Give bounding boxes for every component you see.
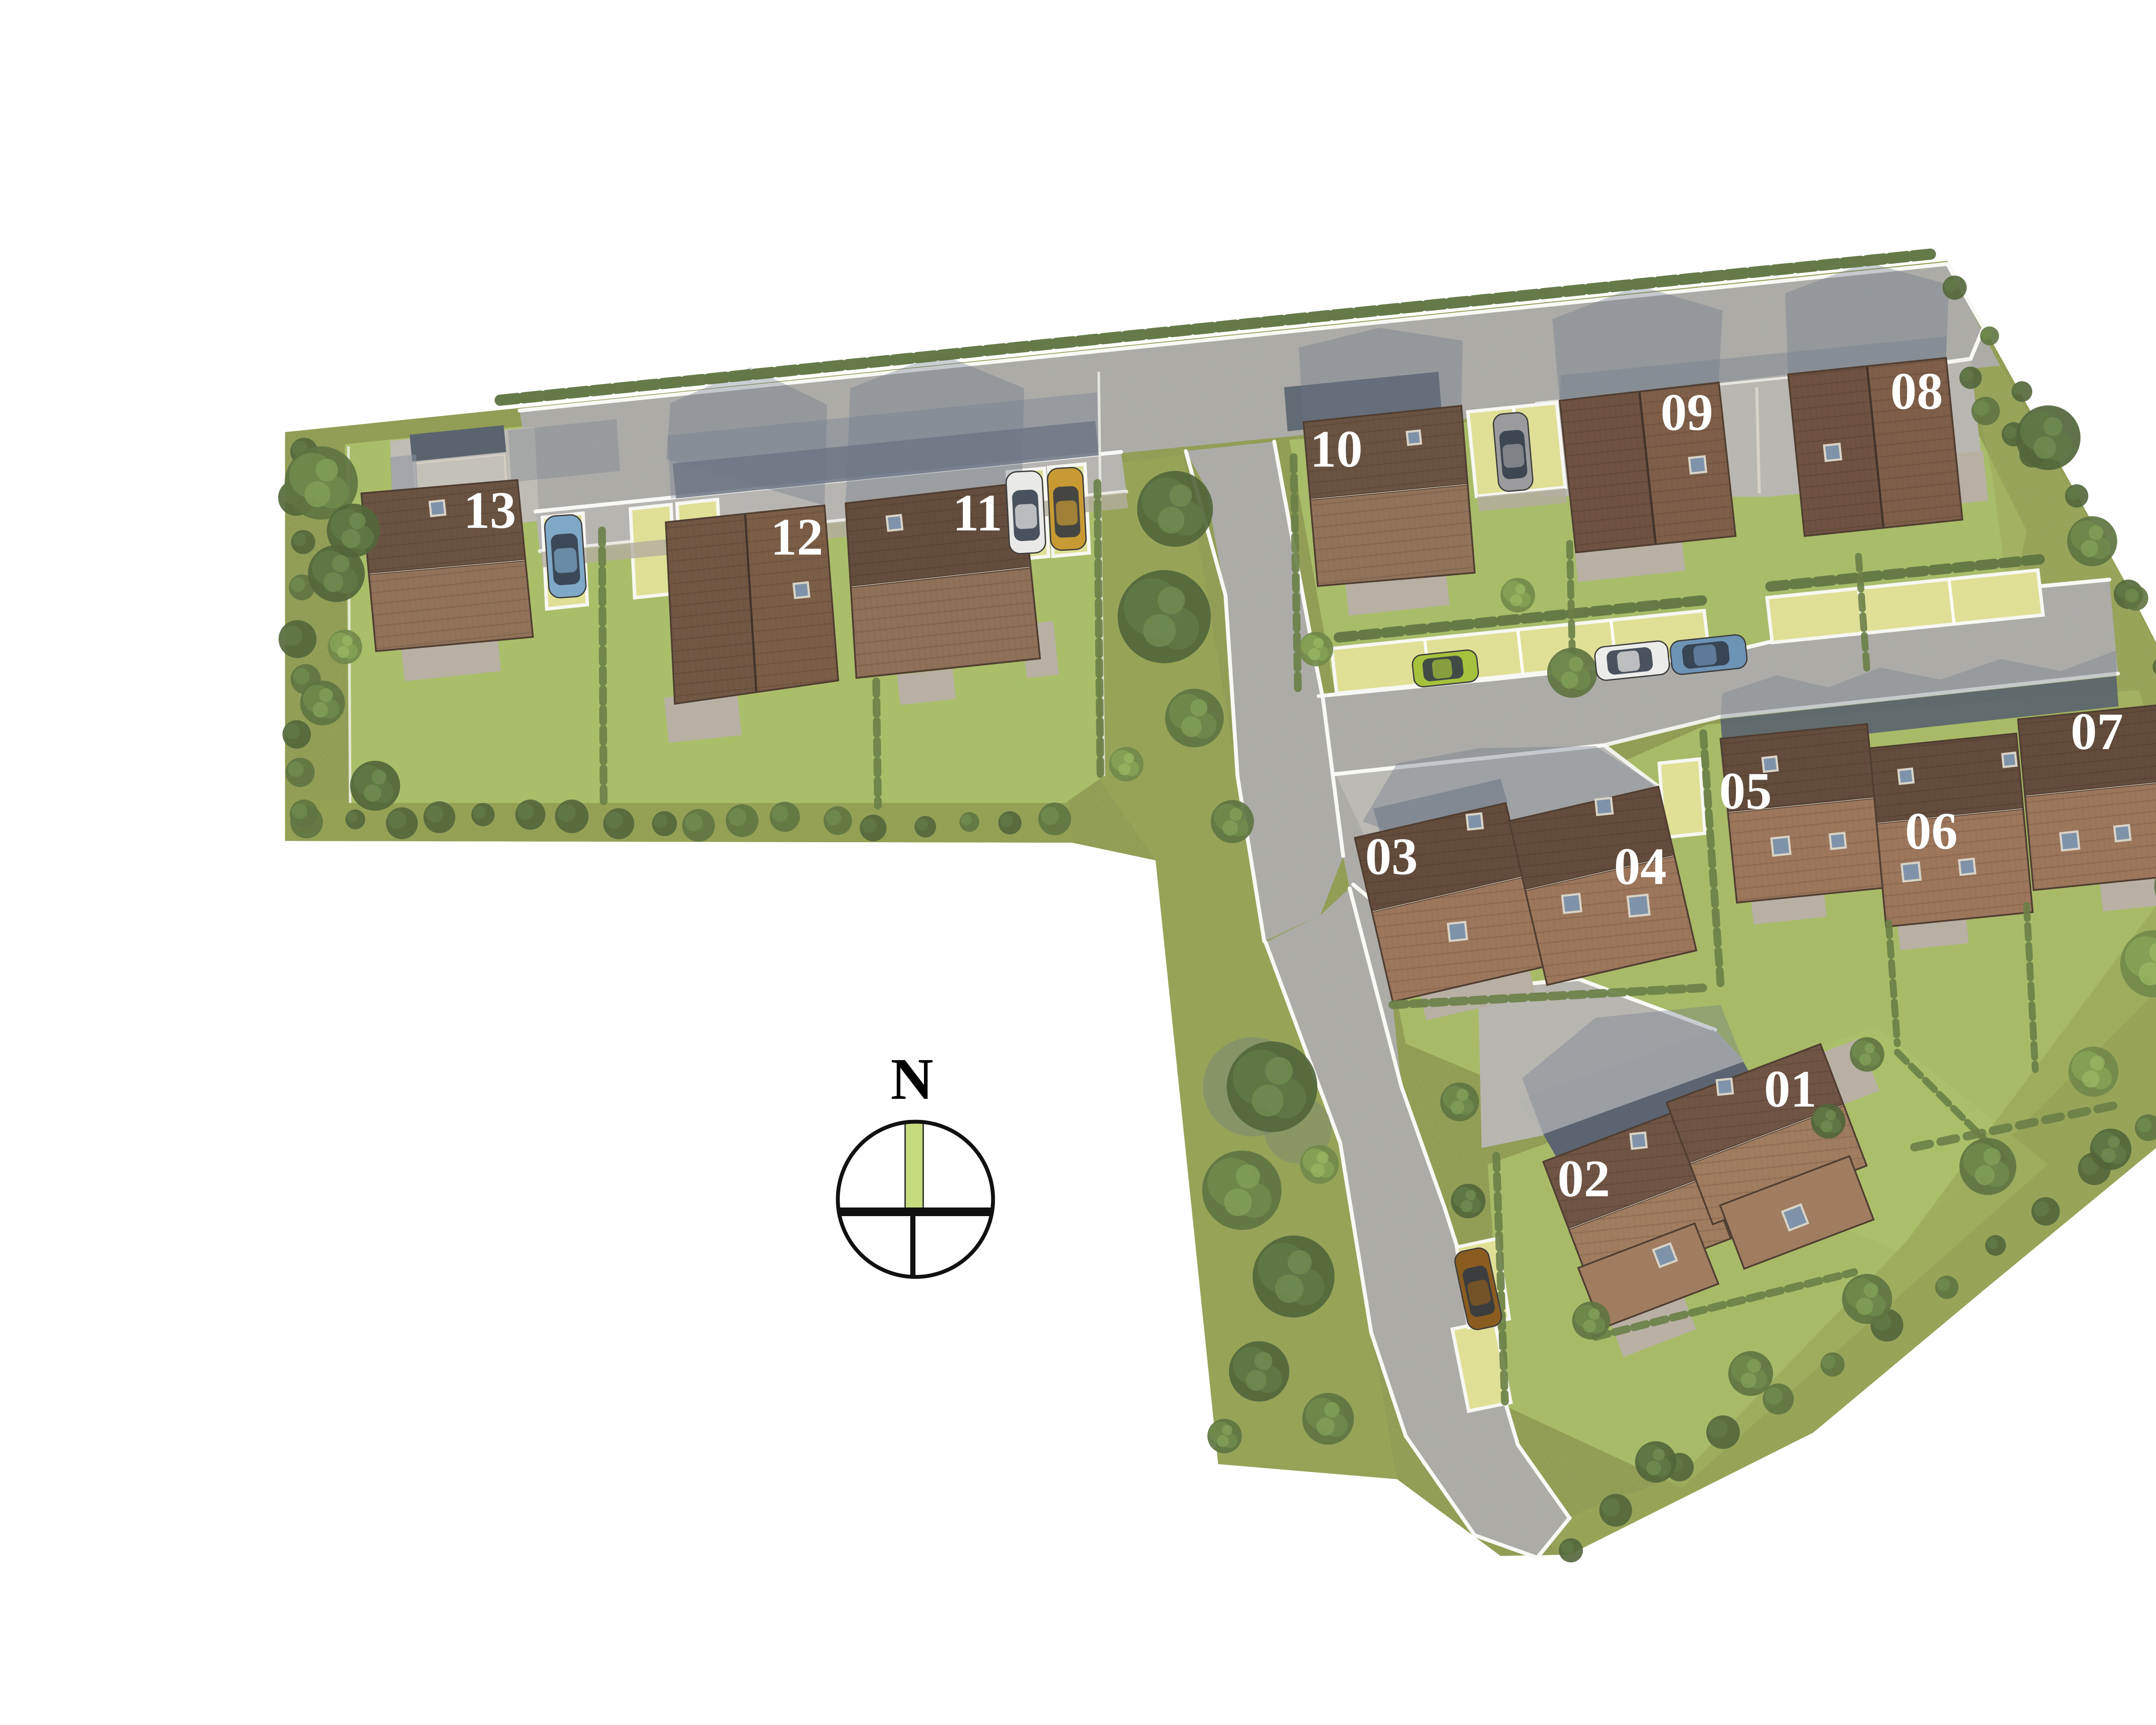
svg-text:N: N: [891, 1046, 934, 1112]
svg-text:11: 11: [953, 484, 1002, 542]
svg-text:05: 05: [1719, 762, 1772, 820]
svg-text:02: 02: [1557, 1150, 1610, 1208]
svg-text:08: 08: [1890, 362, 1943, 420]
svg-text:10: 10: [1310, 420, 1363, 478]
svg-text:01: 01: [1764, 1060, 1817, 1118]
svg-text:07: 07: [2071, 703, 2123, 761]
svg-text:12: 12: [771, 508, 823, 566]
svg-text:09: 09: [1661, 383, 1713, 442]
svg-text:03: 03: [1365, 828, 1418, 886]
svg-text:04: 04: [1614, 837, 1667, 896]
svg-text:06: 06: [1905, 802, 1958, 860]
svg-text:13: 13: [464, 481, 516, 539]
